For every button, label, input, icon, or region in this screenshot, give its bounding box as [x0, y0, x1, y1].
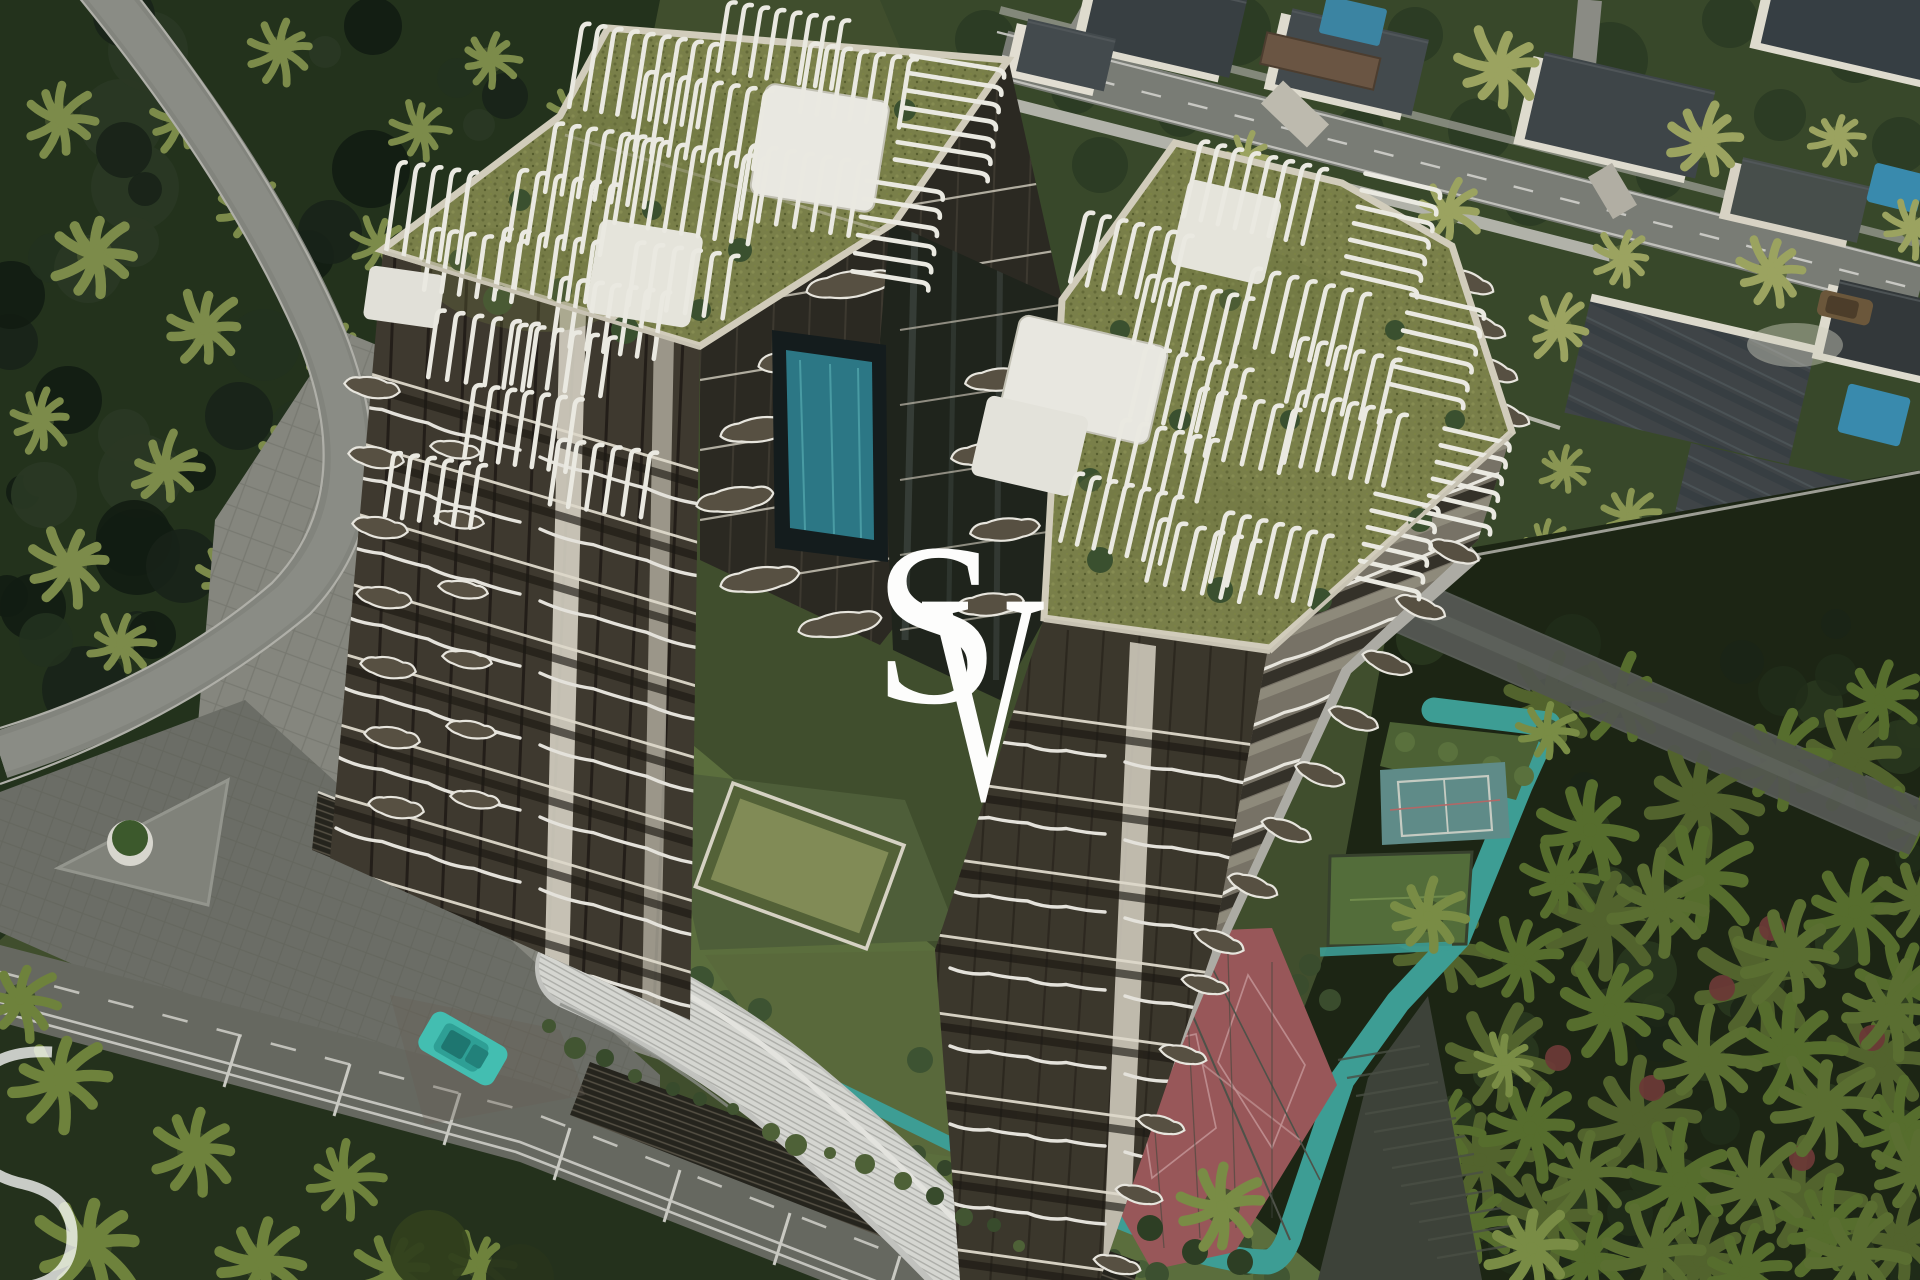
- svg-text:V: V: [920, 531, 1046, 864]
